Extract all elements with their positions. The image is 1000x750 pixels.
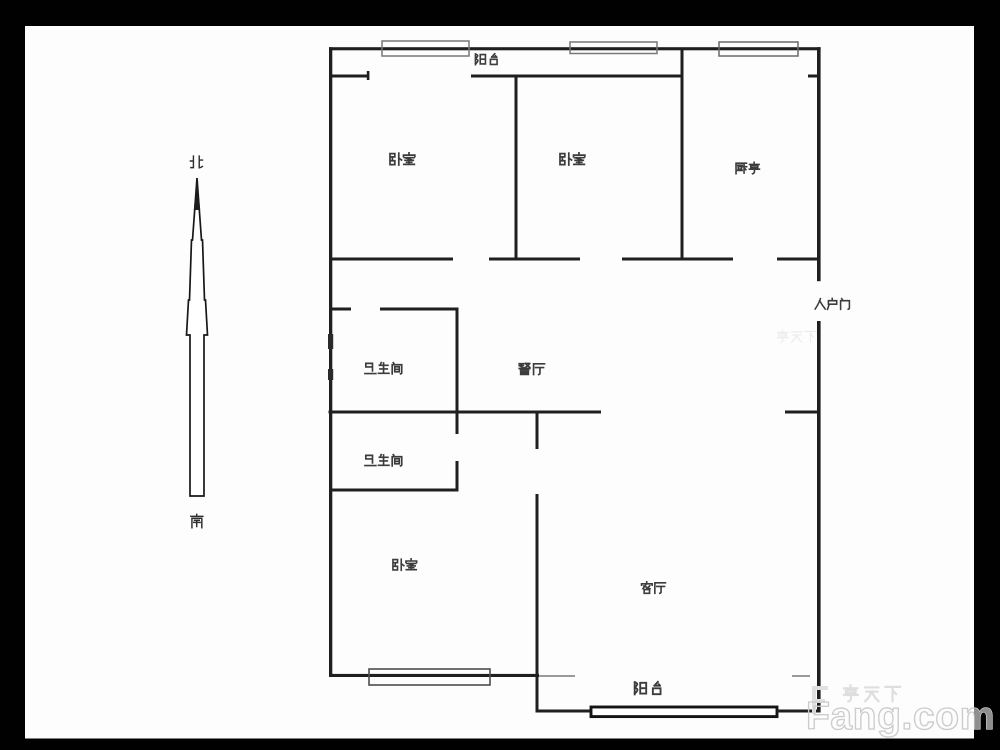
- svg-text:Fang.com: Fang.com: [806, 695, 995, 738]
